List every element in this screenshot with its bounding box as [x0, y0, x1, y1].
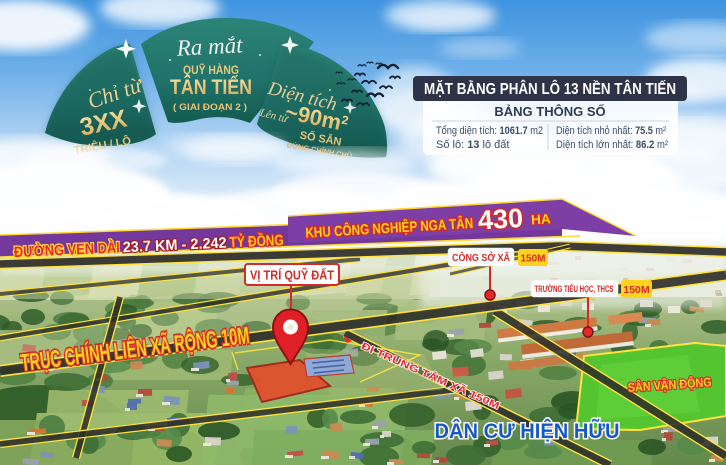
svg-text:Số lô: 13 lô đất: Số lô: 13 lô đất	[436, 139, 509, 151]
svg-text:150M: 150M	[520, 254, 545, 265]
svg-text:TÂN TIẾN: TÂN TIẾN	[170, 75, 252, 99]
svg-text:HA: HA	[531, 211, 552, 227]
svg-text:CÔNG SỞ XÃ: CÔNG SỞ XÃ	[452, 251, 510, 264]
svg-text:430: 430	[477, 203, 524, 236]
svg-text:QUỸ HÀNG: QUỸ HÀNG	[183, 62, 239, 77]
svg-text:( GIAI ĐOẠN 2 ): ( GIAI ĐOẠN 2 )	[173, 102, 247, 113]
svg-text:VỊ TRÍ QUỸ ĐẤT: VỊ TRÍ QUỸ ĐẤT	[250, 268, 334, 283]
svg-text:BẢNG THÔNG SỐ: BẢNG THÔNG SỐ	[494, 104, 605, 119]
svg-text:TRƯỜNG TIỂU HỌC, THCS: TRƯỜNG TIỂU HỌC, THCS	[535, 283, 614, 294]
svg-text:150M: 150M	[623, 284, 650, 296]
svg-text:Ra mắt: Ra mắt	[175, 32, 244, 60]
svg-text:Diện tích lớn nhất: 86.2 m²: Diện tích lớn nhất: 86.2 m²	[556, 139, 668, 151]
svg-text:Tổng diện tích: 1061.7 m2: Tổng diện tích: 1061.7 m2	[436, 125, 543, 137]
svg-text:Diện tích nhỏ nhất: 75.5 m²: Diện tích nhỏ nhất: 75.5 m²	[556, 125, 666, 137]
svg-text:MẶT BẰNG PHÂN LÔ 13 NỀN TÂN TI: MẶT BẰNG PHÂN LÔ 13 NỀN TÂN TIẾN	[424, 79, 676, 98]
svg-text:TỶ ĐỒNG: TỶ ĐỒNG	[229, 231, 284, 251]
svg-text:DÂN CƯ HIỆN HỮU: DÂN CƯ HIỆN HỮU	[435, 419, 620, 443]
